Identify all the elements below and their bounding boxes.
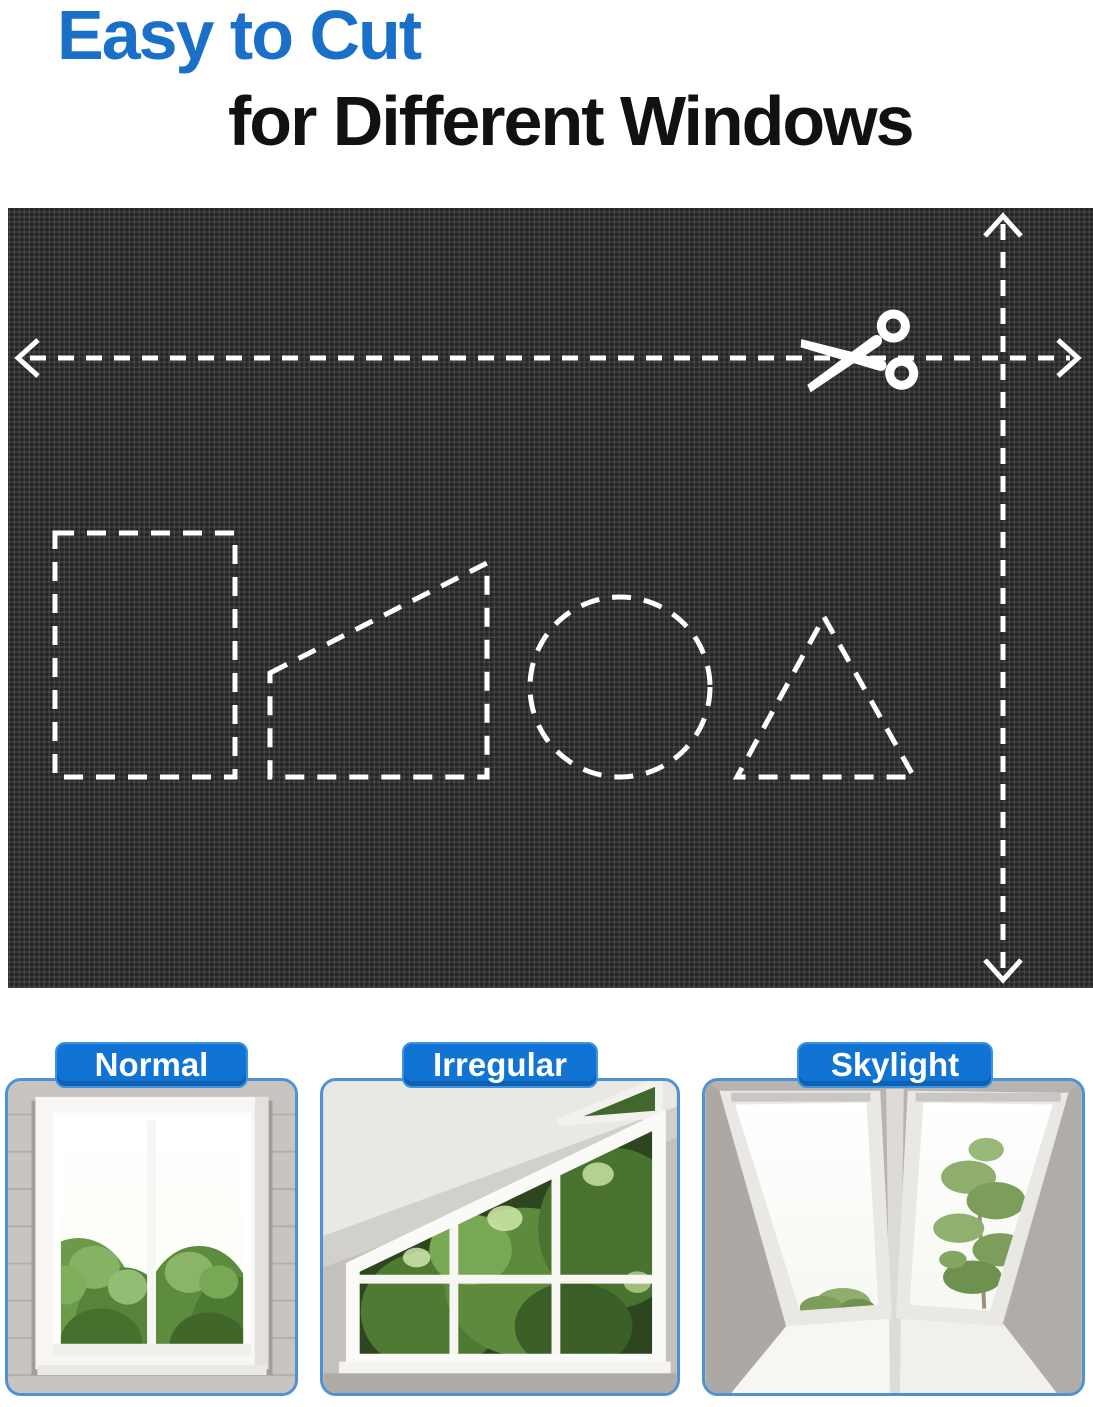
sill	[37, 1365, 266, 1375]
vertical-cut-arrow	[985, 216, 1021, 980]
headline-line1: Easy to Cut	[57, 0, 420, 80]
window-example-irregular	[320, 1078, 680, 1396]
cut-guide-circle	[530, 597, 710, 777]
cut-guide-trapezoid	[270, 563, 487, 777]
badge-label: Irregular	[433, 1046, 567, 1084]
right-blind-housing	[916, 1093, 1061, 1102]
center-mullion	[147, 1120, 156, 1345]
horizontal-cut-arrow	[18, 340, 1078, 376]
cut-guide-triangle	[737, 617, 914, 777]
window-type-badge-irregular: Irregular	[402, 1042, 598, 1088]
window-type-badge-skylight: Skylight	[797, 1042, 993, 1088]
badge-label: Skylight	[831, 1046, 959, 1084]
window-example-normal	[5, 1078, 298, 1396]
window-type-badge-normal: Normal	[55, 1042, 248, 1088]
wall-below-sill	[323, 1373, 676, 1393]
cut-guide-rectangle	[55, 533, 235, 777]
headline-line2: for Different Windows	[228, 78, 913, 166]
irregular-window-photo	[323, 1081, 677, 1393]
sill	[339, 1362, 671, 1374]
skylight-photo	[705, 1081, 1082, 1393]
left-blind-housing	[731, 1093, 870, 1102]
window-example-skylight	[702, 1078, 1085, 1396]
cut-diagram	[8, 208, 1093, 988]
bottom-rail	[53, 1344, 251, 1356]
frame-shade	[255, 1097, 269, 1369]
blackout-fabric-panel	[8, 208, 1093, 988]
normal-window-photo	[8, 1081, 295, 1393]
badge-label: Normal	[95, 1046, 209, 1084]
product-promo-image: Easy to Cut for Different Windows	[0, 0, 1093, 1407]
